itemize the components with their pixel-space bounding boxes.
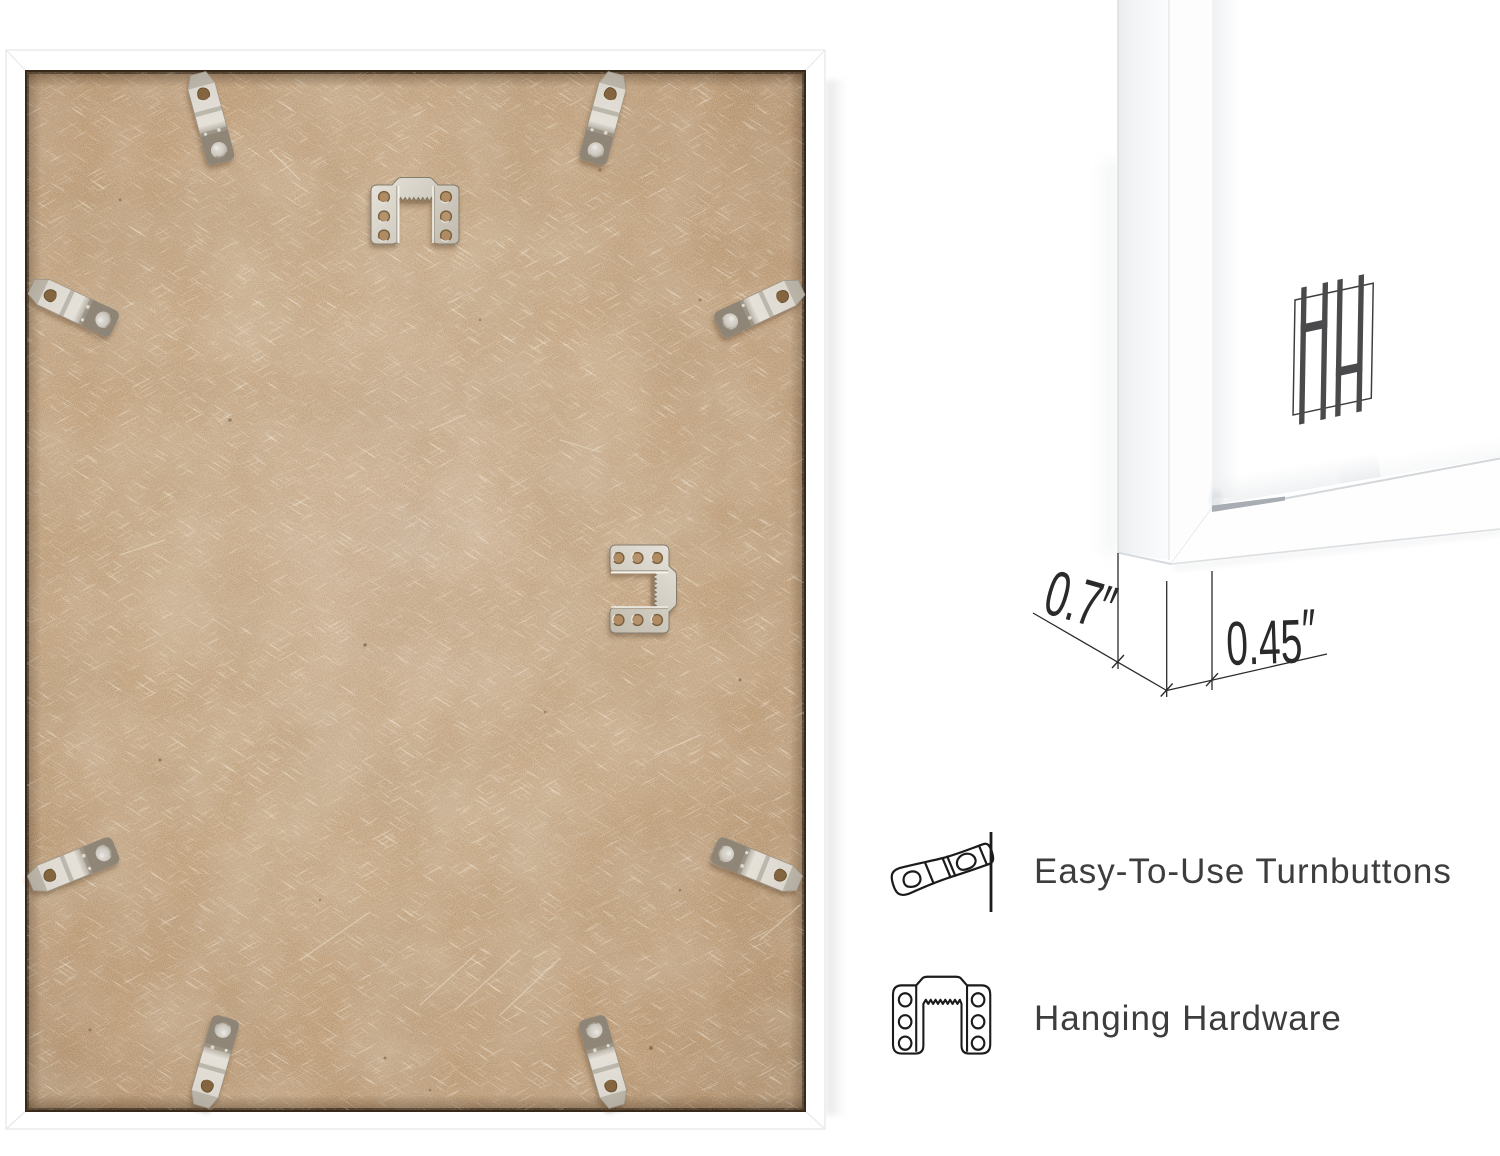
svg-text:Easy-To-Use Turnbuttons: Easy-To-Use Turnbuttons — [1034, 852, 1452, 891]
svg-text:Hanging Hardware: Hanging Hardware — [1034, 999, 1342, 1038]
